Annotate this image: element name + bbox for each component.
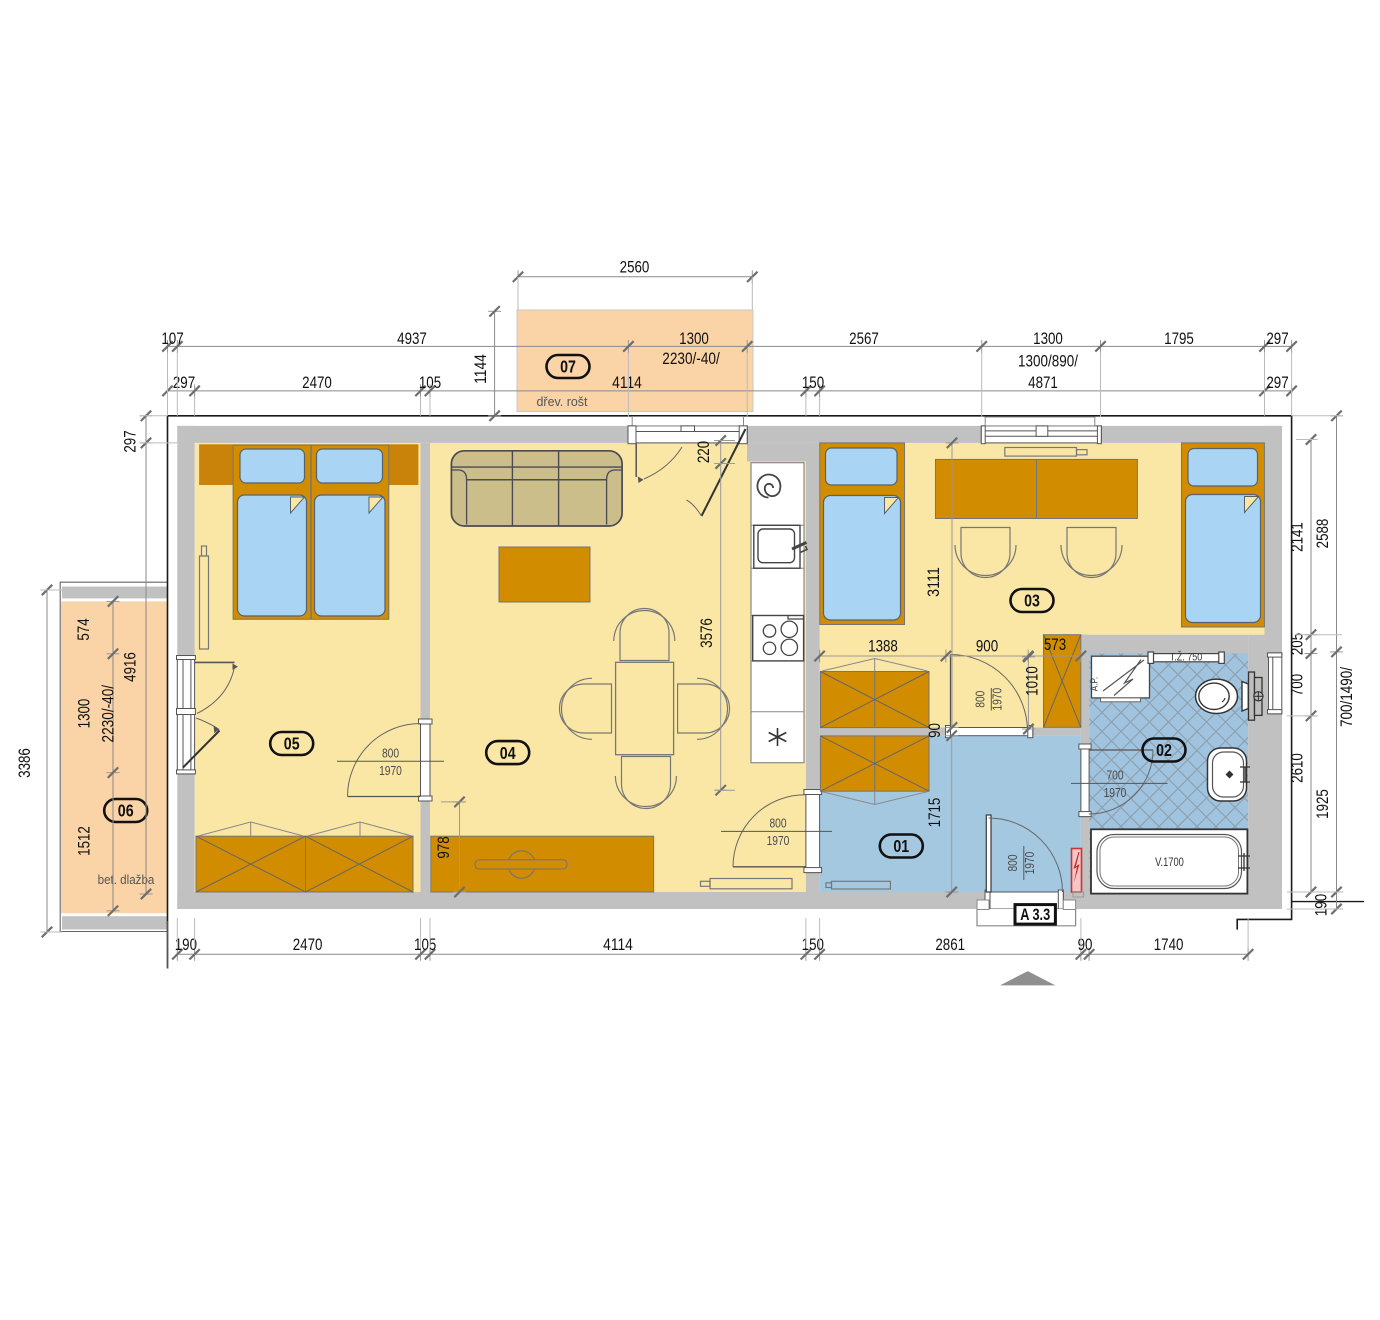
svg-text:02: 02: [1156, 740, 1172, 760]
svg-text:107: 107: [161, 330, 183, 348]
svg-text:A.P.: A.P.: [1089, 677, 1101, 691]
svg-text:800: 800: [769, 817, 786, 831]
svg-text:A 3.3: A 3.3: [1020, 906, 1050, 924]
svg-text:4114: 4114: [603, 936, 633, 954]
svg-text:2230/-40/: 2230/-40/: [100, 685, 118, 743]
svg-text:90: 90: [926, 723, 944, 738]
svg-text:1300: 1300: [76, 699, 94, 729]
svg-text:1925: 1925: [1314, 789, 1332, 819]
svg-text:1144: 1144: [472, 354, 490, 384]
svg-text:90: 90: [1078, 936, 1093, 954]
svg-text:574: 574: [75, 618, 93, 640]
svg-text:297: 297: [122, 430, 140, 452]
svg-text:800: 800: [382, 747, 399, 761]
svg-text:297: 297: [1266, 374, 1288, 392]
svg-text:1300: 1300: [679, 330, 709, 348]
svg-text:190: 190: [1313, 894, 1331, 916]
svg-text:105: 105: [419, 374, 441, 392]
svg-text:V.1700: V.1700: [1155, 857, 1184, 869]
svg-text:1300: 1300: [1033, 330, 1063, 348]
svg-text:1970: 1970: [767, 834, 790, 848]
svg-text:07: 07: [560, 357, 576, 377]
svg-text:2610: 2610: [1289, 753, 1307, 783]
svg-text:1970: 1970: [379, 764, 402, 778]
svg-text:1715: 1715: [926, 798, 944, 828]
svg-text:T.Ž. 750: T.Ž. 750: [1170, 651, 1203, 664]
svg-text:1970: 1970: [1104, 786, 1127, 800]
svg-text:2141: 2141: [1289, 522, 1307, 552]
svg-text:205: 205: [1289, 633, 1307, 655]
svg-text:1388: 1388: [868, 638, 898, 656]
svg-text:978: 978: [435, 836, 453, 858]
svg-text:297: 297: [173, 374, 195, 392]
svg-text:3576: 3576: [698, 618, 716, 648]
svg-text:3386: 3386: [16, 748, 34, 778]
svg-text:04: 04: [500, 743, 516, 763]
svg-text:4916: 4916: [121, 652, 139, 682]
svg-text:1795: 1795: [1164, 330, 1194, 348]
svg-text:700: 700: [1106, 769, 1123, 783]
svg-text:2560: 2560: [620, 258, 650, 276]
svg-text:06: 06: [118, 801, 134, 821]
svg-text:900: 900: [976, 638, 998, 656]
svg-text:1740: 1740: [1154, 936, 1184, 954]
svg-text:2230/-40/: 2230/-40/: [662, 350, 720, 368]
svg-text:297: 297: [1266, 330, 1288, 348]
svg-text:1970: 1970: [991, 688, 1005, 711]
svg-text:700/1490/: 700/1490/: [1338, 667, 1356, 727]
svg-text:3111: 3111: [925, 567, 943, 597]
svg-text:4114: 4114: [612, 374, 642, 392]
svg-text:05: 05: [284, 734, 300, 754]
svg-text:2470: 2470: [293, 936, 323, 954]
svg-text:220: 220: [695, 441, 713, 463]
svg-text:150: 150: [802, 374, 824, 392]
svg-text:dřev. rošt: dřev. rošt: [537, 395, 589, 409]
svg-text:2861: 2861: [935, 936, 965, 954]
svg-text:1512: 1512: [76, 826, 94, 856]
svg-text:700: 700: [1289, 674, 1307, 696]
svg-text:03: 03: [1024, 591, 1040, 611]
svg-text:800: 800: [1006, 854, 1020, 871]
svg-text:105: 105: [414, 936, 436, 954]
svg-text:01: 01: [893, 836, 909, 856]
svg-text:573: 573: [1044, 636, 1066, 654]
svg-text:2588: 2588: [1314, 519, 1332, 549]
svg-text:2470: 2470: [302, 374, 332, 392]
svg-text:4871: 4871: [1028, 374, 1058, 392]
svg-text:4937: 4937: [397, 330, 427, 348]
svg-text:2567: 2567: [849, 330, 879, 348]
svg-text:1970: 1970: [1023, 852, 1037, 875]
svg-text:1010: 1010: [1024, 666, 1042, 696]
svg-text:800: 800: [974, 691, 988, 708]
svg-text:1300/890/: 1300/890/: [1018, 352, 1078, 370]
svg-text:190: 190: [175, 936, 197, 954]
svg-text:150: 150: [802, 936, 824, 954]
